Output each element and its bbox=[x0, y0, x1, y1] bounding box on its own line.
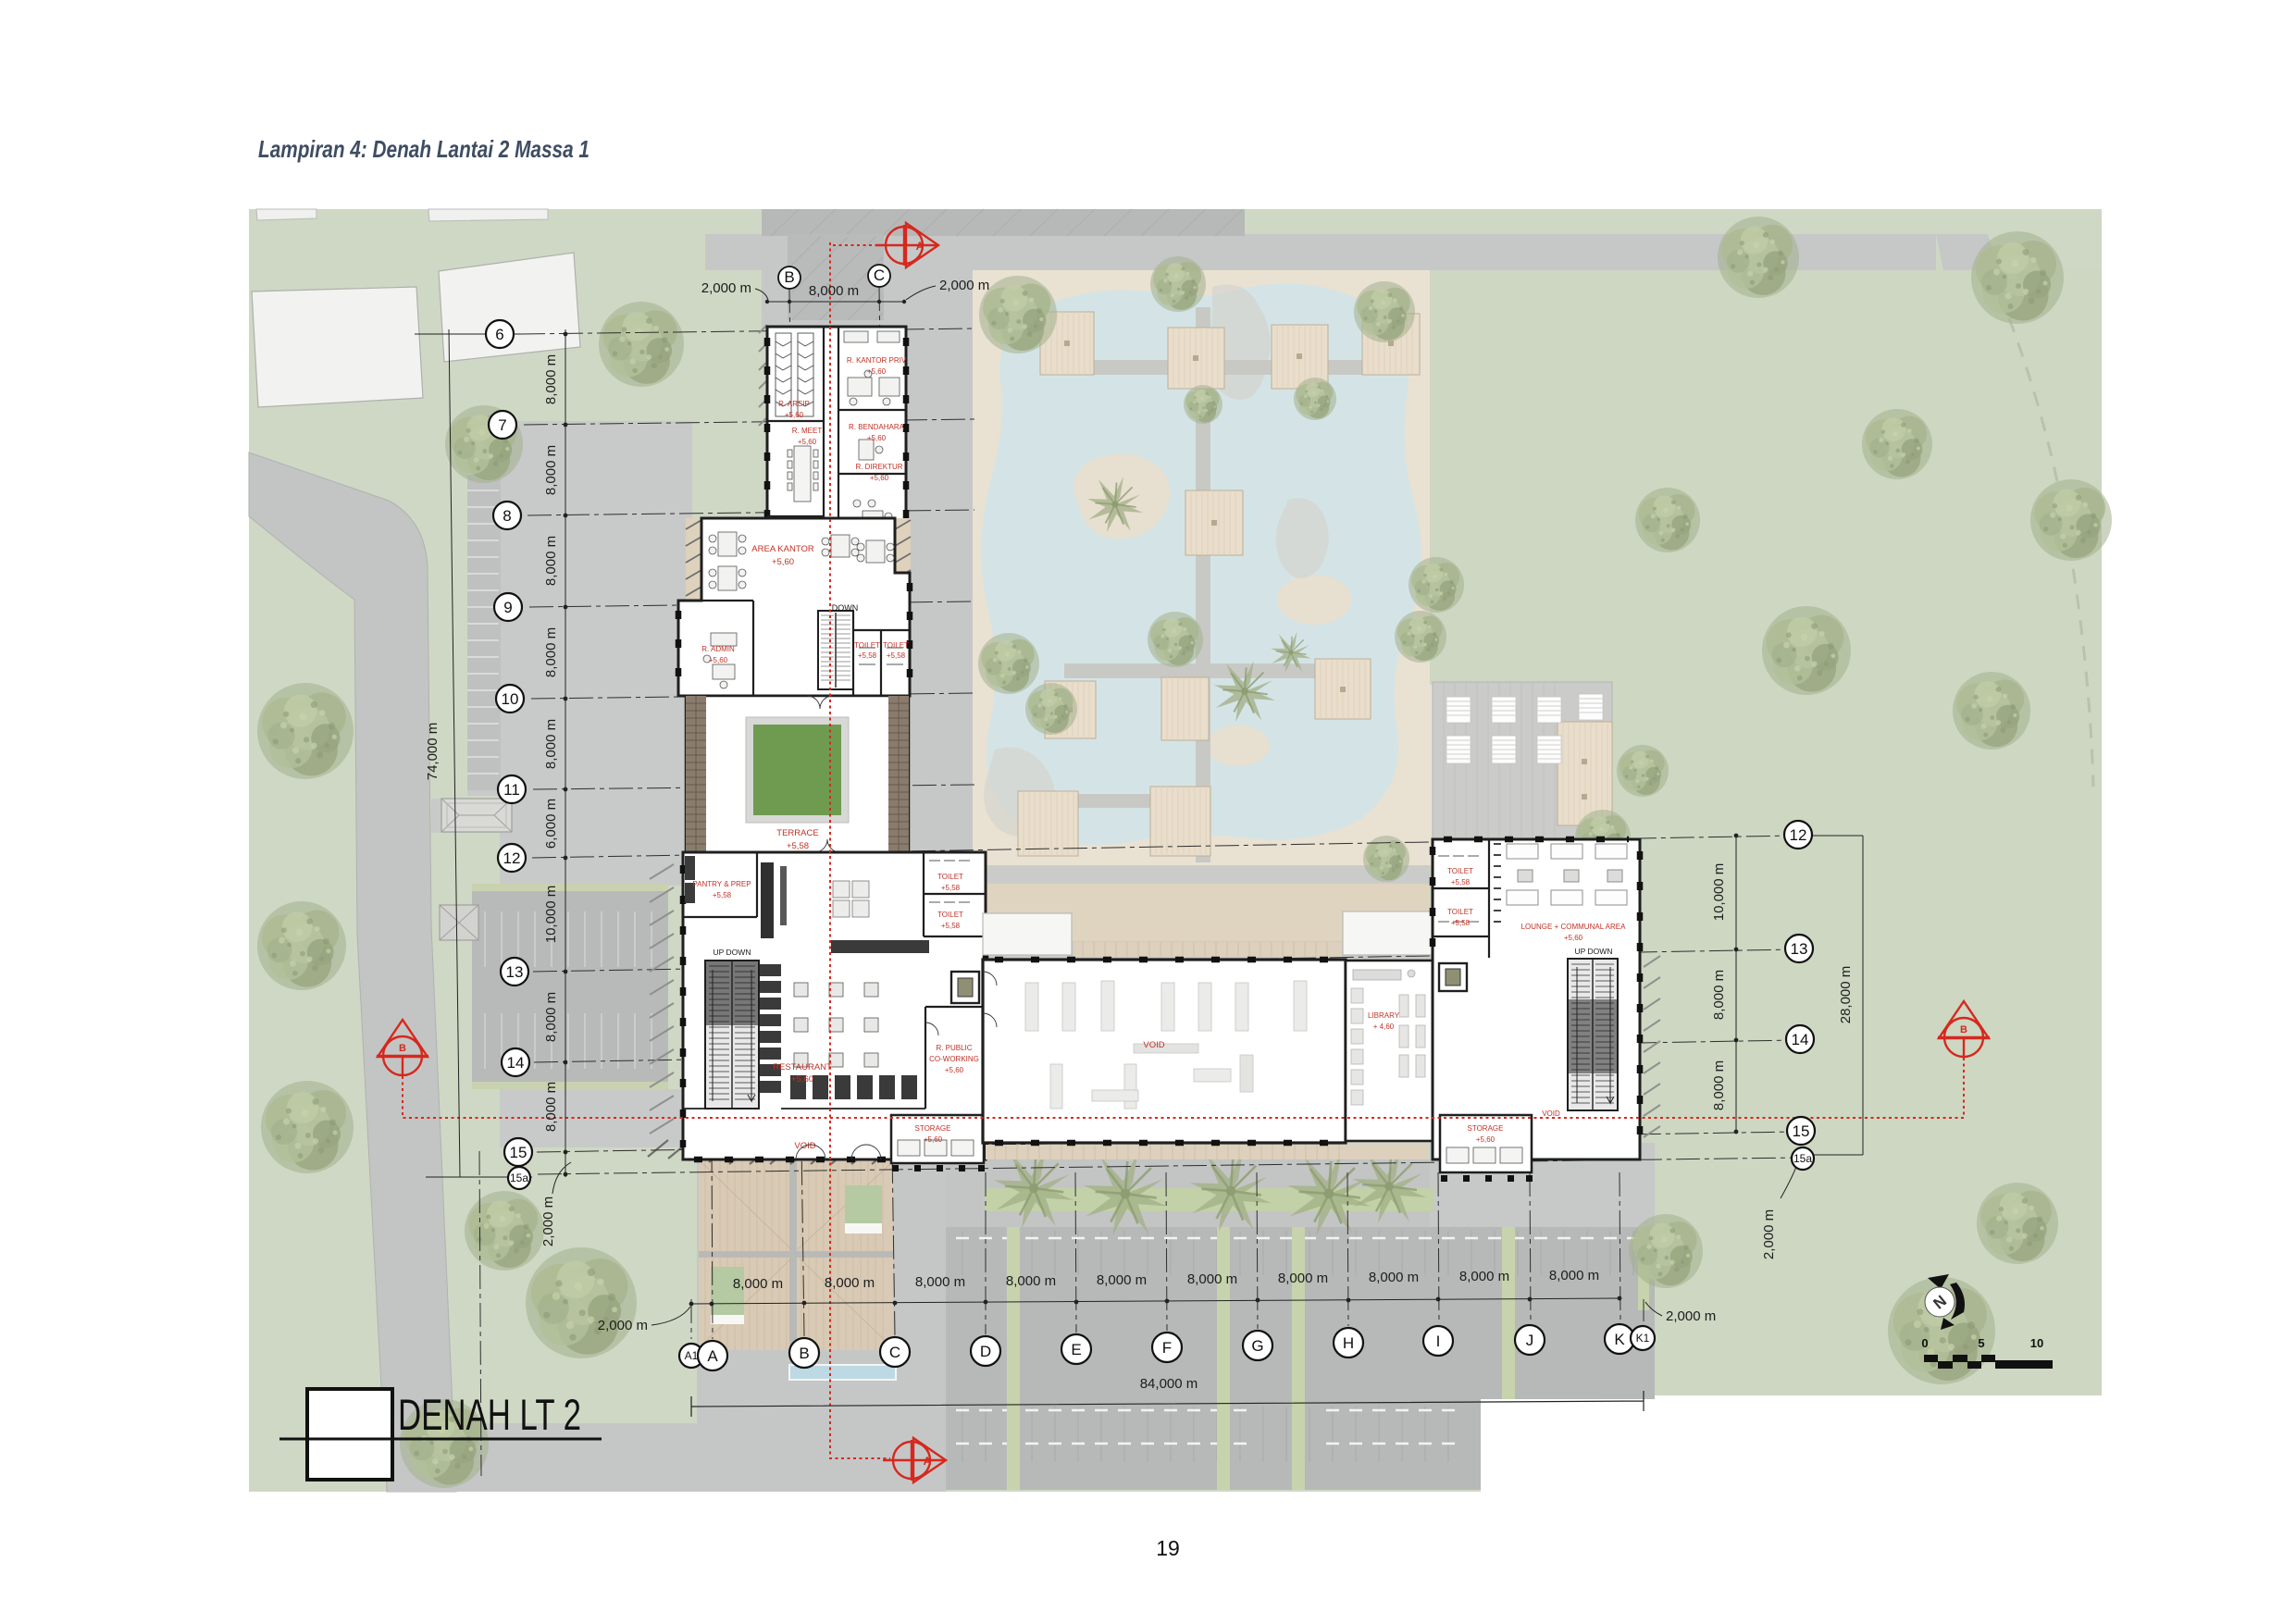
svg-text:10: 10 bbox=[502, 690, 519, 708]
svg-text:B: B bbox=[799, 1345, 809, 1362]
svg-text:R. DIREKTUR: R. DIREKTUR bbox=[855, 463, 902, 471]
svg-text:9: 9 bbox=[503, 599, 512, 616]
svg-text:19: 19 bbox=[1156, 1536, 1180, 1560]
svg-text:8,000 m: 8,000 m bbox=[1187, 1271, 1237, 1287]
svg-text:8,000 m: 8,000 m bbox=[543, 992, 559, 1042]
svg-text:2,000 m: 2,000 m bbox=[540, 1196, 556, 1246]
svg-text:I: I bbox=[1436, 1333, 1441, 1350]
svg-text:+ 4,60: + 4,60 bbox=[1373, 1023, 1395, 1031]
svg-text:13: 13 bbox=[1791, 940, 1808, 958]
svg-text:7: 7 bbox=[498, 416, 506, 434]
svg-text:G: G bbox=[1251, 1337, 1263, 1355]
svg-text:28,000 m: 28,000 m bbox=[1838, 966, 1854, 1024]
svg-text:LOUNGE + COMMUNAL AREA: LOUNGE + COMMUNAL AREA bbox=[1521, 923, 1627, 931]
svg-text:R. KANTOR PRIV: R. KANTOR PRIV bbox=[847, 356, 907, 365]
svg-text:PANTRY & PREP: PANTRY & PREP bbox=[692, 880, 751, 888]
svg-text:10,000 m: 10,000 m bbox=[543, 886, 559, 944]
svg-text:14: 14 bbox=[507, 1054, 525, 1072]
svg-text:D: D bbox=[980, 1343, 991, 1360]
svg-text:TOILET: TOILET bbox=[937, 911, 963, 919]
svg-text:+5,60: +5,60 bbox=[785, 411, 804, 419]
svg-text:TERRACE: TERRACE bbox=[776, 828, 818, 838]
svg-text:K: K bbox=[1614, 1331, 1625, 1348]
svg-text:2,000 m: 2,000 m bbox=[939, 278, 989, 293]
svg-text:UP DOWN: UP DOWN bbox=[714, 948, 751, 957]
svg-text:10: 10 bbox=[2030, 1336, 2043, 1350]
svg-text:11: 11 bbox=[503, 781, 520, 799]
svg-text:84,000 m: 84,000 m bbox=[1140, 1376, 1198, 1392]
svg-text:+5,58: +5,58 bbox=[941, 884, 961, 892]
svg-text:5: 5 bbox=[1978, 1336, 1984, 1350]
svg-text:12: 12 bbox=[503, 849, 521, 867]
svg-text:8,000 m: 8,000 m bbox=[1549, 1268, 1599, 1283]
svg-text:A: A bbox=[924, 1455, 932, 1468]
svg-text:STORAGE: STORAGE bbox=[1468, 1124, 1504, 1133]
svg-text:6: 6 bbox=[495, 326, 503, 343]
svg-text:+5,58: +5,58 bbox=[941, 922, 961, 930]
svg-text:DOWN: DOWN bbox=[832, 603, 859, 613]
svg-text:R. BENDAHARA: R. BENDAHARA bbox=[849, 423, 905, 431]
svg-text:8,000 m: 8,000 m bbox=[1006, 1273, 1056, 1289]
svg-text:+5,60: +5,60 bbox=[772, 557, 794, 567]
svg-text:8,000 m: 8,000 m bbox=[543, 627, 559, 677]
svg-text:R. MEET: R. MEET bbox=[792, 427, 823, 435]
svg-text:TOILET: TOILET bbox=[883, 641, 909, 650]
svg-text:8,000 m: 8,000 m bbox=[1097, 1272, 1147, 1288]
svg-text:R. ARSIP: R. ARSIP bbox=[778, 400, 810, 408]
svg-text:E: E bbox=[1071, 1341, 1081, 1358]
svg-text:8,000 m: 8,000 m bbox=[809, 283, 859, 299]
svg-text:DENAH LT 2: DENAH LT 2 bbox=[398, 1390, 581, 1439]
svg-text:A: A bbox=[916, 240, 925, 253]
svg-text:B: B bbox=[399, 1043, 406, 1054]
svg-text:8,000 m: 8,000 m bbox=[1369, 1270, 1419, 1285]
svg-text:0: 0 bbox=[1921, 1336, 1928, 1350]
svg-text:+5,58: +5,58 bbox=[1451, 878, 1471, 886]
svg-text:+5,60: +5,60 bbox=[798, 438, 817, 446]
svg-text:STORAGE: STORAGE bbox=[915, 1124, 951, 1133]
svg-text:+5,58: +5,58 bbox=[887, 651, 906, 660]
svg-text:15a: 15a bbox=[1793, 1152, 1812, 1165]
svg-text:AREA KANTOR: AREA KANTOR bbox=[751, 544, 814, 554]
svg-text:8,000 m: 8,000 m bbox=[1459, 1269, 1509, 1284]
svg-text:CO-WORKING: CO-WORKING bbox=[929, 1055, 979, 1063]
svg-text:10,000 m: 10,000 m bbox=[1711, 863, 1727, 922]
svg-text:+5,60: +5,60 bbox=[867, 367, 887, 376]
svg-text:14: 14 bbox=[1792, 1031, 1809, 1048]
svg-text:+5,60: +5,60 bbox=[924, 1135, 943, 1144]
svg-text:2,000 m: 2,000 m bbox=[701, 280, 751, 296]
svg-text:Lampiran 4: Denah Lantai 2 Mas: Lampiran 4: Denah Lantai 2 Massa 1 bbox=[258, 135, 590, 163]
svg-text:A1: A1 bbox=[685, 1349, 699, 1362]
svg-text:LIBRARY: LIBRARY bbox=[1368, 1011, 1400, 1020]
svg-text:8: 8 bbox=[503, 507, 511, 525]
svg-text:K1: K1 bbox=[1636, 1332, 1650, 1345]
svg-text:C: C bbox=[889, 1344, 900, 1361]
svg-text:13: 13 bbox=[506, 963, 524, 981]
svg-text:H: H bbox=[1343, 1334, 1354, 1352]
svg-text:+5,60: +5,60 bbox=[867, 434, 887, 442]
svg-text:C: C bbox=[874, 267, 885, 284]
svg-text:+5,58: +5,58 bbox=[787, 841, 809, 851]
svg-text:8,000 m: 8,000 m bbox=[543, 536, 559, 586]
svg-text:TOILET: TOILET bbox=[1447, 867, 1473, 875]
svg-text:+5,60: +5,60 bbox=[791, 1074, 813, 1085]
svg-text:VOID: VOID bbox=[1542, 1110, 1560, 1118]
svg-text:R. ADMIN: R. ADMIN bbox=[701, 645, 735, 653]
svg-text:F: F bbox=[1162, 1339, 1172, 1357]
svg-text:8,000 m: 8,000 m bbox=[825, 1275, 875, 1291]
svg-text:8,000 m: 8,000 m bbox=[543, 719, 559, 769]
svg-text:8,000 m: 8,000 m bbox=[1711, 970, 1727, 1020]
svg-text:+5,58: +5,58 bbox=[713, 891, 732, 899]
svg-text:15a: 15a bbox=[510, 1172, 528, 1184]
svg-text:2,000 m: 2,000 m bbox=[1666, 1308, 1716, 1324]
svg-text:12: 12 bbox=[1790, 826, 1807, 844]
svg-text:TOILET: TOILET bbox=[854, 641, 880, 650]
svg-text:+5,58: +5,58 bbox=[1451, 919, 1471, 927]
svg-text:B: B bbox=[1960, 1024, 1967, 1035]
svg-text:RESTAURANT: RESTAURANT bbox=[773, 1062, 832, 1072]
svg-text:B: B bbox=[784, 268, 794, 286]
svg-text:+5,60: +5,60 bbox=[870, 474, 889, 482]
svg-text:TOILET: TOILET bbox=[1447, 908, 1473, 916]
svg-text:A: A bbox=[707, 1347, 718, 1365]
svg-text:8,000 m: 8,000 m bbox=[543, 354, 559, 404]
svg-text:+5,60: +5,60 bbox=[945, 1066, 964, 1074]
svg-text:8,000 m: 8,000 m bbox=[1711, 1060, 1727, 1110]
svg-text:+5,60: +5,60 bbox=[1564, 934, 1583, 942]
svg-text:15: 15 bbox=[1793, 1122, 1810, 1140]
svg-text:2,000 m: 2,000 m bbox=[1761, 1209, 1777, 1259]
svg-text:8,000 m: 8,000 m bbox=[543, 1082, 559, 1132]
svg-text:8,000 m: 8,000 m bbox=[1278, 1271, 1328, 1286]
svg-text:2,000 m: 2,000 m bbox=[598, 1318, 648, 1333]
svg-text:+5,60: +5,60 bbox=[709, 656, 728, 664]
svg-text:+5,58: +5,58 bbox=[858, 651, 877, 660]
svg-text:6,000 m: 6,000 m bbox=[543, 799, 559, 849]
svg-text:74,000 m: 74,000 m bbox=[425, 723, 441, 781]
svg-text:TOILET: TOILET bbox=[937, 873, 963, 881]
svg-text:8,000 m: 8,000 m bbox=[733, 1276, 783, 1292]
svg-text:8,000 m: 8,000 m bbox=[915, 1274, 965, 1290]
svg-text:R. PUBLIC: R. PUBLIC bbox=[936, 1044, 972, 1052]
svg-text:+5,60: +5,60 bbox=[1476, 1135, 1496, 1144]
svg-text:VOID: VOID bbox=[1143, 1040, 1164, 1050]
svg-text:15: 15 bbox=[510, 1144, 527, 1161]
svg-text:UP DOWN: UP DOWN bbox=[1575, 947, 1613, 956]
svg-text:8,000 m: 8,000 m bbox=[543, 445, 559, 495]
svg-text:J: J bbox=[1526, 1332, 1534, 1349]
